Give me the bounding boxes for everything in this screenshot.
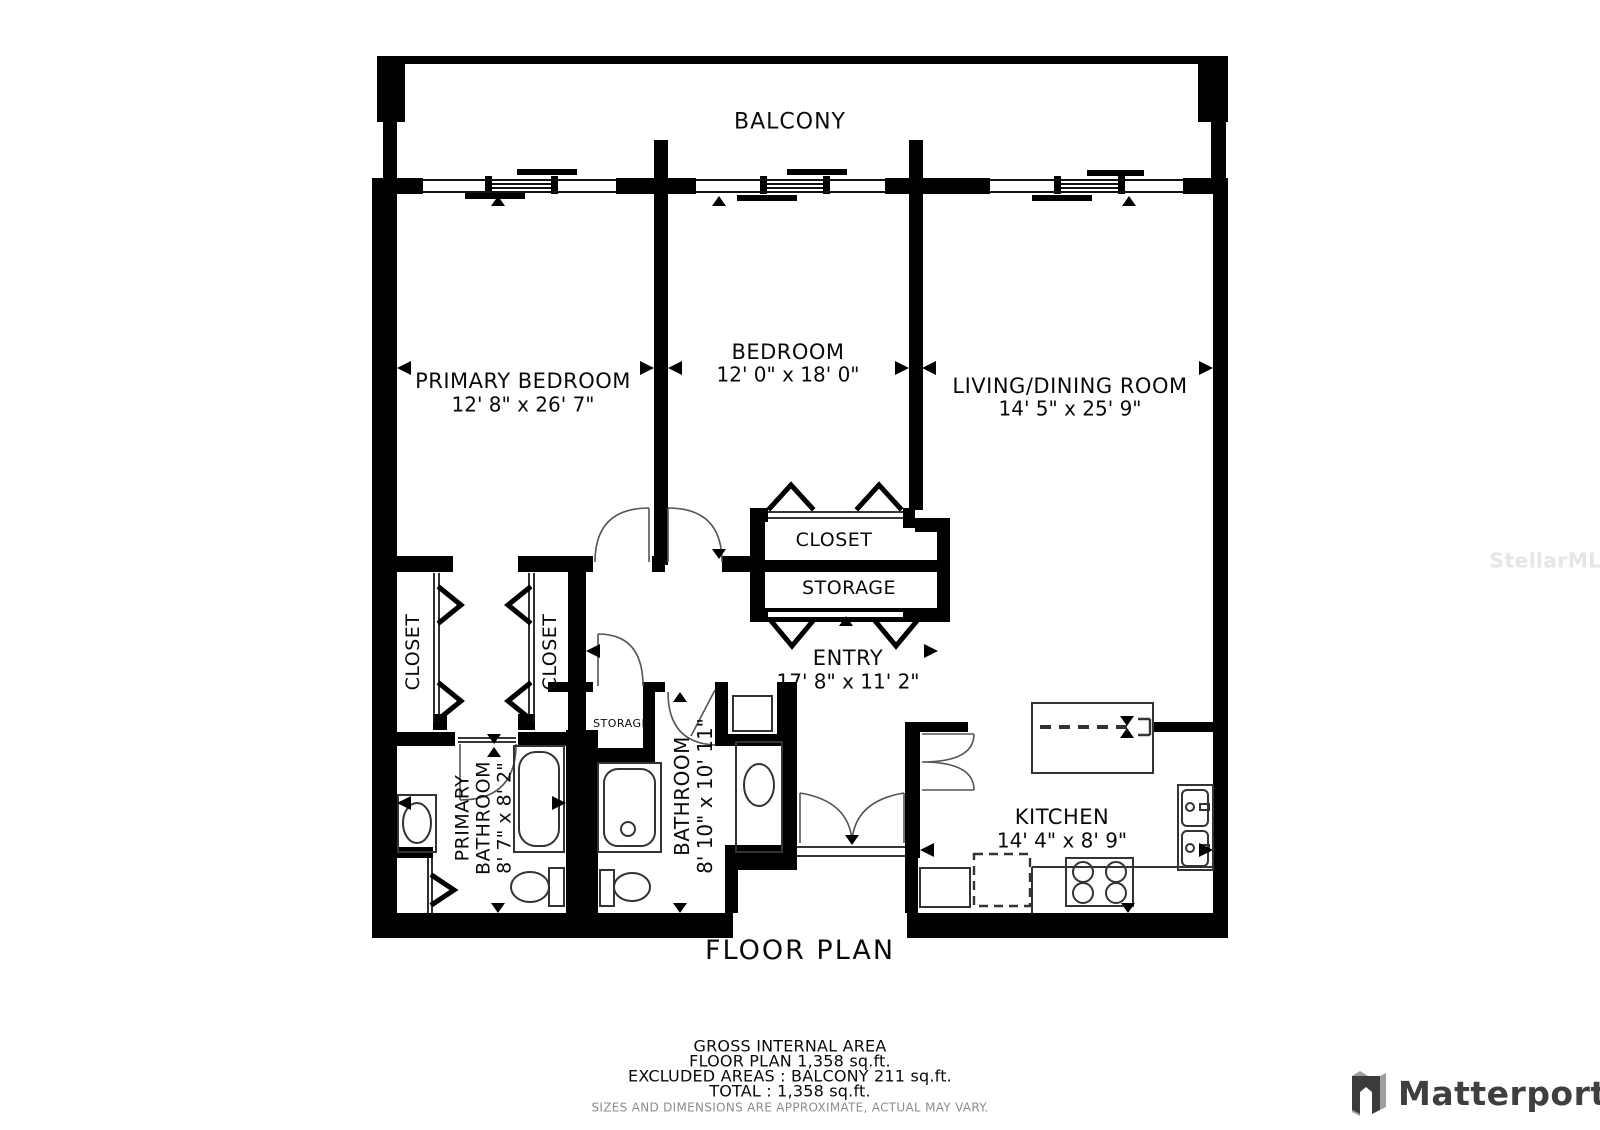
right-exterior-wall <box>1213 178 1228 938</box>
matterport-logo-icon <box>1344 1070 1388 1116</box>
shower-drain <box>621 822 635 836</box>
primary-bedroom-dims: 12' 8" x 26' 7" <box>451 395 594 416</box>
hall-storage-door <box>598 634 643 686</box>
kitchen-dims: 14' 4" x 8' 9" <box>997 831 1127 852</box>
primary-toilet-tank <box>549 868 564 906</box>
bathroom-label: BATHROOM <box>671 718 694 874</box>
toilet-tank <box>600 870 614 906</box>
kitchen-label: KITCHEN <box>1015 806 1110 828</box>
primary-bathroom-label-1: PRIMARY <box>453 761 474 875</box>
bathroom-label-block: BATHROOM 8' 10" x 10' 11" <box>671 718 717 874</box>
kitchen-west-wall <box>905 722 920 858</box>
primary-closet-right-label: CLOSET <box>541 614 561 691</box>
balcony-left-pillar <box>377 64 405 122</box>
bedroom-dims: 12' 0" x 18' 0" <box>716 365 859 386</box>
sliding-door-windows <box>423 180 1183 192</box>
living-dining-label: LIVING/DINING ROOM <box>952 375 1187 397</box>
bottom-exterior-wall-right <box>907 913 1228 938</box>
hall-storage-label: STORAGE <box>593 718 649 730</box>
balcony-right-pillar <box>1198 64 1228 122</box>
storage-label: STORAGE <box>802 579 896 599</box>
entry-dims: 17' 8" x 11' 2" <box>776 672 919 693</box>
primary-bathroom-label-2: BATHROOM <box>474 761 495 875</box>
bedroom-divider-wall-1 <box>654 140 668 565</box>
pass-through-bracket <box>1138 719 1150 735</box>
matterport-branding: Matterport <box>1344 1070 1600 1116</box>
page-title: FLOOR PLAN <box>705 937 895 965</box>
disclaimer-text: SIZES AND DIMENSIONS ARE APPROXIMATE, AC… <box>591 1102 988 1115</box>
kitchen-corner-counter <box>920 868 970 907</box>
balcony-label: BALCONY <box>734 110 846 133</box>
primary-bathroom-label-block: PRIMARY BATHROOM 8' 7" x 8' 2" <box>453 761 516 875</box>
balcony-top-wall <box>377 56 1228 64</box>
bathroom-dims: 8' 10" x 10' 11" <box>694 718 717 874</box>
bedroom-divider-wall-2 <box>909 140 923 510</box>
bedroom-door <box>668 508 722 562</box>
stellar-mls-watermark: StellarMLS <box>1490 551 1600 572</box>
kitchen-closet-doors <box>922 734 974 790</box>
primary-toilet-bowl <box>511 872 549 902</box>
shower <box>598 763 661 852</box>
floor-plan-page: BALCONY PRIMARY BEDROOM 12' 8" x 26' 7" … <box>0 0 1600 1130</box>
bathroom-cabinet <box>733 696 772 731</box>
storage-door-track <box>768 612 903 617</box>
bottom-exterior-wall-left <box>372 913 733 938</box>
bedroom-closet-label: CLOSET <box>796 531 873 551</box>
matterport-logo-text: Matterport <box>1398 1074 1600 1113</box>
bedroom-label: BEDROOM <box>731 341 844 363</box>
shower-pan <box>604 769 655 846</box>
toilet-bowl <box>614 873 650 901</box>
area-summary-line-4: TOTAL : 1,358 sq.ft. <box>709 1084 871 1101</box>
primary-closet-left-label: CLOSET <box>404 614 424 691</box>
primary-bathroom-dims: 8' 7" x 8' 2" <box>495 761 516 875</box>
primary-bedroom-door <box>595 508 649 562</box>
primary-bath-sink <box>403 803 431 843</box>
primary-bedroom-label: PRIMARY BEDROOM <box>415 370 631 392</box>
bathroom-vanity <box>736 742 782 852</box>
appliance-dashed <box>974 854 1030 906</box>
living-dining-dims: 14' 5" x 25' 9" <box>998 399 1141 420</box>
entry-label: ENTRY <box>813 647 883 669</box>
bathroom-sink <box>744 764 774 806</box>
kitchen-peninsula-counter <box>1032 703 1153 773</box>
